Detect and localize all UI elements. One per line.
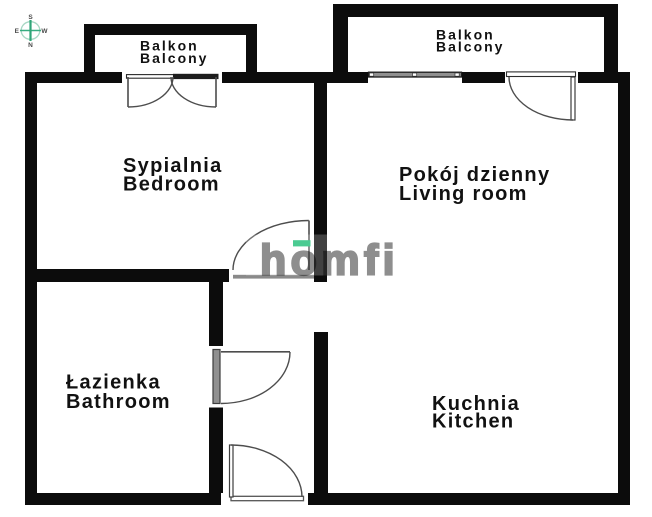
svg-text:Balcony: Balcony (436, 39, 504, 55)
svg-text:Bedroom: Bedroom (123, 174, 220, 196)
svg-text:W: W (41, 28, 48, 35)
svg-text:Bathroom: Bathroom (66, 391, 171, 413)
svg-text:Kitchen: Kitchen (432, 411, 514, 433)
svg-text:Living room: Living room (399, 183, 528, 205)
svg-text:Balcony: Balcony (140, 50, 208, 66)
svg-text:E: E (15, 28, 20, 35)
svg-text:homfi: homfi (260, 237, 399, 285)
svg-text:S: S (28, 14, 33, 21)
svg-text:N: N (28, 42, 33, 49)
